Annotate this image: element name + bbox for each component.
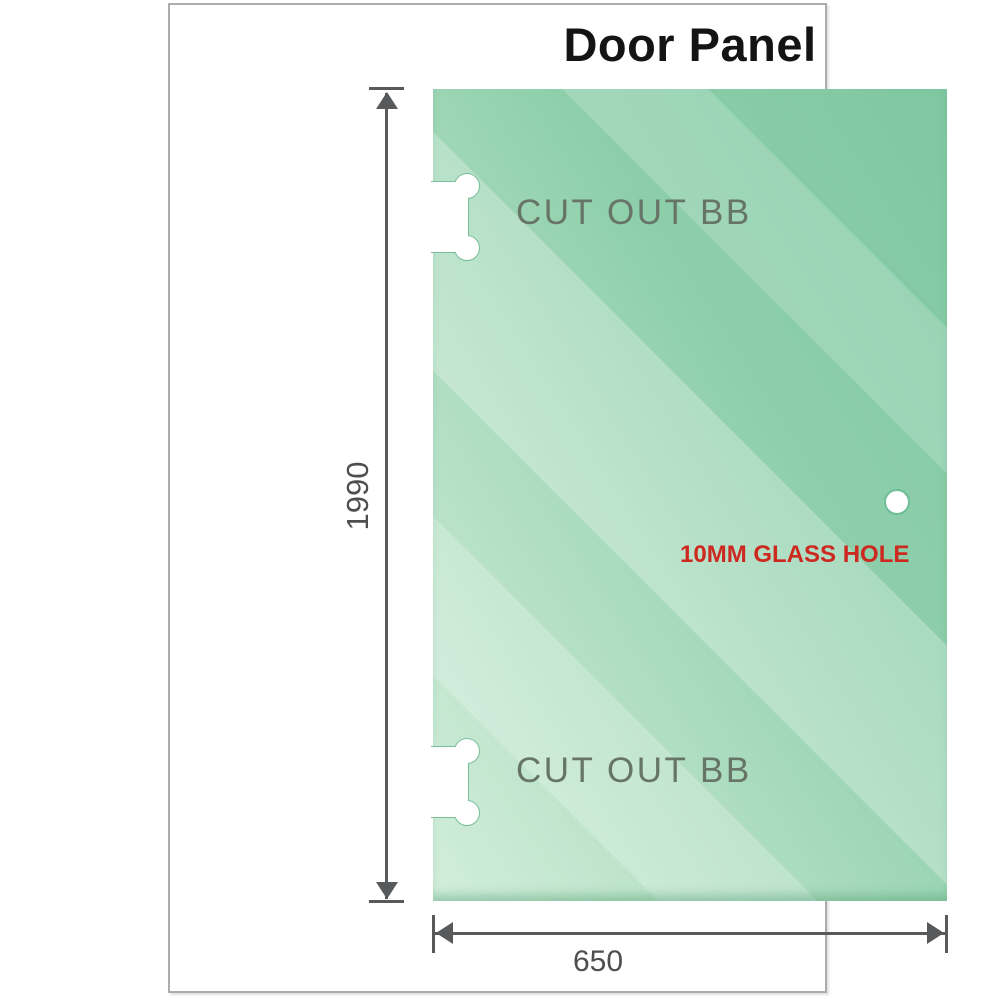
hinge-cutout-bottom-icon [431,736,483,828]
height-arrow-down-icon [376,882,398,899]
height-dimension-tick-top [369,87,404,90]
glass-hole-label: 10MM GLASS HOLE [680,541,880,569]
height-arrow-up-icon [376,92,398,109]
page-title: Door Panel [440,17,940,72]
width-arrow-right-icon [927,922,944,944]
width-arrow-left-icon [436,922,453,944]
height-dimension-value: 1990 [340,436,374,556]
cutout-top-label: CUT OUT BB [516,193,766,233]
cutout-bottom-label: CUT OUT BB [516,751,766,791]
drawing-frame: Door Panel CUT OUT BB CUT OUT BB 10MM GL… [168,3,827,993]
hinge-cutout-top-icon [431,171,483,263]
width-dimension-value: 650 [538,945,658,979]
height-dimension-tick-bottom [369,900,404,903]
width-dimension-line [434,932,946,935]
glass-hole-icon [884,489,910,515]
height-dimension-line [385,93,388,899]
diagram-canvas: Door Panel CUT OUT BB CUT OUT BB 10MM GL… [0,0,1000,1000]
